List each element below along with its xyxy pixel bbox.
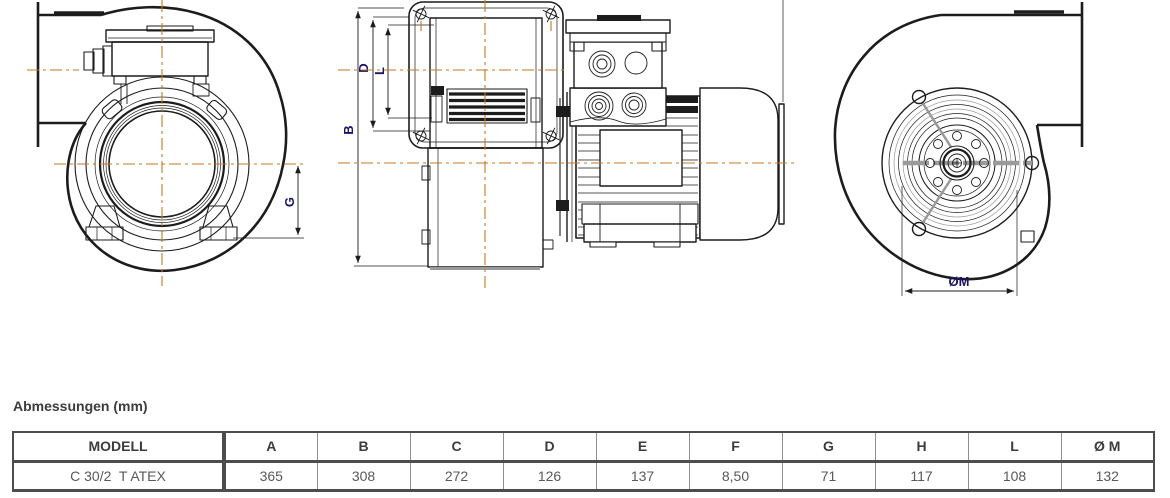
value-cell-g: 71 <box>782 461 875 490</box>
dim-label-om: ØM <box>949 274 970 289</box>
dim-label-g: G <box>282 197 297 207</box>
column-header-d: D <box>503 432 596 461</box>
value-cell-l: 108 <box>968 461 1061 490</box>
table-header-row: MODELL A B C D E F G H L Ø M <box>13 432 1154 461</box>
value-cell-f: 8,50 <box>689 461 782 490</box>
column-header-h: H <box>875 432 968 461</box>
section-title: Abmessungen (mm) <box>13 398 148 414</box>
column-header-om: Ø M <box>1061 432 1154 461</box>
column-header-modell: MODELL <box>13 432 224 461</box>
column-header-l: L <box>968 432 1061 461</box>
value-cell-d: 126 <box>503 461 596 490</box>
column-header-b: B <box>317 432 410 461</box>
top-view-drawing: B D L <box>338 0 798 290</box>
dim-label-l: L <box>372 67 387 75</box>
value-cell-c: 272 <box>410 461 503 490</box>
value-cell-e: 137 <box>596 461 689 490</box>
dim-label-d: D <box>356 63 371 72</box>
column-header-a: A <box>224 432 317 461</box>
back-view-drawing: ØM <box>835 2 1082 296</box>
column-header-c: C <box>410 432 503 461</box>
technical-drawing: G <box>0 0 1170 392</box>
value-cell-b: 308 <box>317 461 410 490</box>
value-cell-a: 365 <box>224 461 317 490</box>
column-header-g: G <box>782 432 875 461</box>
dimensions-table: MODELL A B C D E F G H L Ø M C 30/2 T AT… <box>12 431 1155 492</box>
table-row: C 30/2 T ATEX 365 308 272 126 137 8,50 7… <box>13 461 1154 490</box>
column-header-f: F <box>689 432 782 461</box>
column-header-e: E <box>596 432 689 461</box>
value-cell-h: 117 <box>875 461 968 490</box>
front-view-drawing: G <box>27 0 306 286</box>
fan-dimension-drawing: G <box>0 0 1170 392</box>
model-cell: C 30/2 T ATEX <box>13 461 224 490</box>
dim-label-b: B <box>341 125 356 134</box>
value-cell-om: 132 <box>1061 461 1154 490</box>
datasheet-page: G <box>0 0 1170 498</box>
